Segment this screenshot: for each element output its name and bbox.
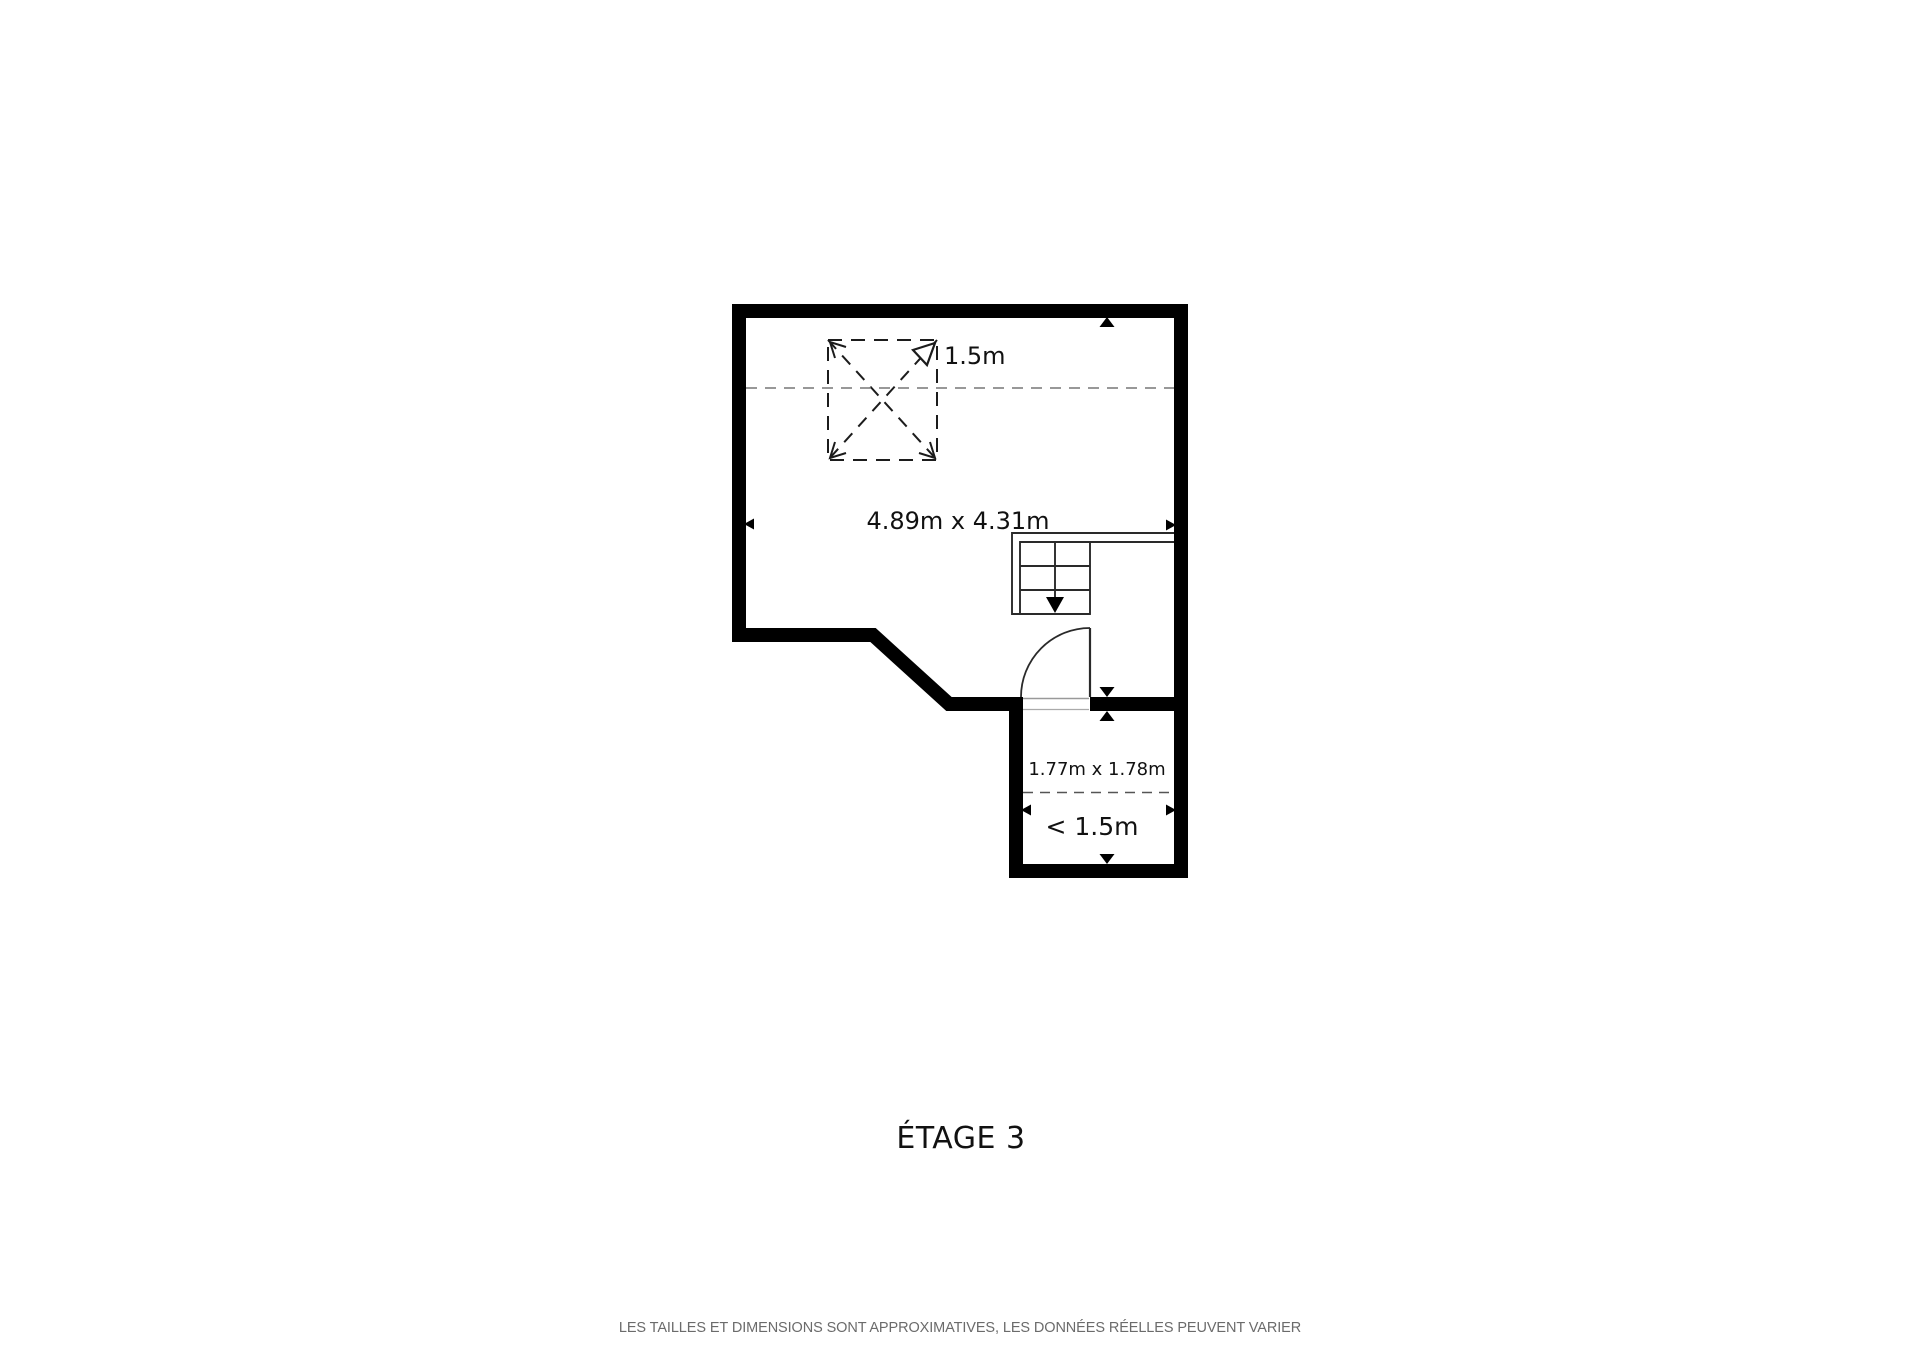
disclaimer-text: LES TAILLES ET DIMENSIONS SONT APPROXIMA… bbox=[619, 1320, 1301, 1337]
floor-title: ÉTAGE 3 bbox=[896, 1121, 1025, 1157]
dimension-arrow-up-icon bbox=[1100, 317, 1115, 327]
stairs-down-arrow-icon bbox=[1046, 597, 1064, 613]
dimension-arrows bbox=[744, 317, 1176, 864]
door-icon bbox=[1021, 628, 1090, 710]
stairs-icon bbox=[1012, 533, 1174, 614]
stairs-outer-outline bbox=[1012, 533, 1174, 614]
dimension-arrow-up-icon bbox=[1100, 711, 1115, 721]
wall-outline bbox=[739, 311, 1181, 871]
door-swing-arc bbox=[1021, 628, 1090, 697]
walls bbox=[739, 311, 1181, 871]
floor-plan-page: 1.5m 4.89m x 4.31m 1.77m x 1.78m < 1.5m … bbox=[0, 0, 1920, 1358]
dimension-arrow-down-icon bbox=[1100, 687, 1115, 697]
small-room-dimensions-label: 1.77m x 1.78m bbox=[1028, 759, 1165, 781]
skylight-label: 1.5m bbox=[944, 342, 1006, 371]
small-room-ceiling-height-label: < 1.5m bbox=[1045, 812, 1138, 842]
dimension-arrow-down-icon bbox=[1100, 854, 1115, 864]
main-room-dimensions-label: 4.89m x 4.31m bbox=[866, 507, 1049, 536]
skylight-icon bbox=[828, 340, 937, 460]
